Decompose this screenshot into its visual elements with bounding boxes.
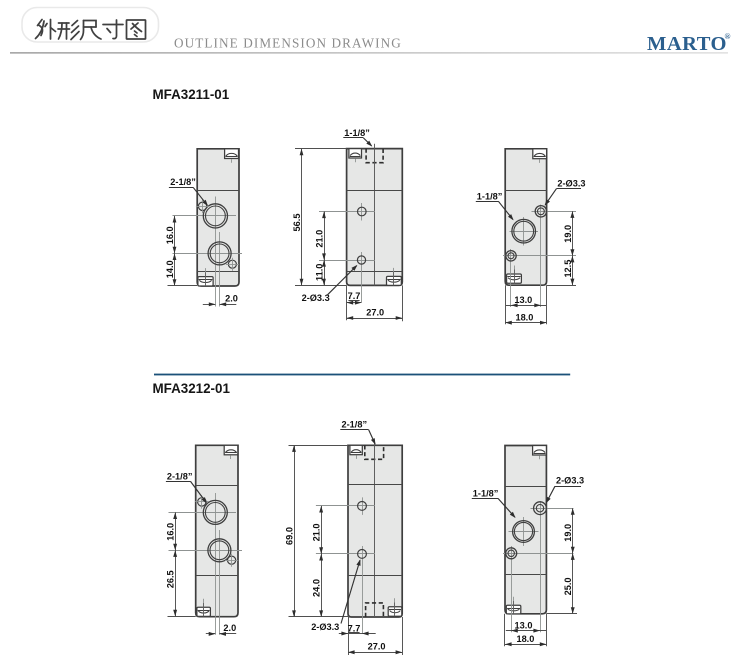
- svg-text:2.0: 2.0: [223, 623, 236, 633]
- svg-text:21.0: 21.0: [314, 230, 324, 248]
- svg-text:1-1/8”: 1-1/8”: [477, 191, 503, 201]
- svg-text:OUTLINE DIMENSION DRAWING: OUTLINE DIMENSION DRAWING: [174, 36, 402, 51]
- svg-text:13.0: 13.0: [515, 620, 533, 630]
- svg-text:18.0: 18.0: [516, 634, 534, 644]
- svg-text:16.0: 16.0: [166, 523, 176, 541]
- svg-text:18.0: 18.0: [515, 312, 533, 322]
- svg-text:26.5: 26.5: [166, 570, 176, 588]
- svg-text:19.0: 19.0: [563, 225, 573, 243]
- svg-text:24.0: 24.0: [312, 579, 322, 597]
- svg-text:2-1/8”: 2-1/8”: [167, 471, 193, 481]
- svg-text:MFA3212-01: MFA3212-01: [153, 381, 231, 396]
- svg-text:1-1/8”: 1-1/8”: [473, 488, 499, 498]
- svg-text:21.0: 21.0: [312, 523, 322, 541]
- svg-text:2-1/8”: 2-1/8”: [342, 419, 368, 429]
- svg-text:7.7: 7.7: [348, 291, 361, 301]
- svg-text:2-Ø3.3: 2-Ø3.3: [556, 475, 584, 485]
- svg-text:11.0: 11.0: [314, 264, 324, 281]
- svg-text:1-1/8”: 1-1/8”: [344, 128, 370, 138]
- svg-text:MARTO: MARTO: [647, 33, 727, 55]
- svg-text:27.0: 27.0: [368, 641, 386, 651]
- svg-text:19.0: 19.0: [563, 524, 573, 542]
- svg-text:56.5: 56.5: [292, 214, 302, 232]
- svg-text:69.0: 69.0: [284, 527, 294, 545]
- svg-text:2-Ø3.3: 2-Ø3.3: [302, 293, 330, 303]
- svg-text:14.0: 14.0: [165, 260, 175, 278]
- svg-text:25.0: 25.0: [563, 577, 573, 595]
- svg-text:13.0: 13.0: [514, 295, 532, 305]
- svg-text:12.5: 12.5: [563, 260, 573, 278]
- svg-text:27.0: 27.0: [366, 308, 384, 318]
- svg-text:7.7: 7.7: [348, 623, 361, 633]
- svg-text:16.0: 16.0: [165, 226, 175, 244]
- svg-text:2-Ø3.3: 2-Ø3.3: [557, 178, 585, 188]
- svg-text:2-1/8”: 2-1/8”: [170, 177, 196, 187]
- svg-text:2.0: 2.0: [225, 293, 238, 303]
- svg-text:®: ®: [725, 32, 731, 41]
- svg-text:MFA3211-01: MFA3211-01: [153, 87, 230, 102]
- svg-text:2-Ø3.3: 2-Ø3.3: [311, 622, 339, 632]
